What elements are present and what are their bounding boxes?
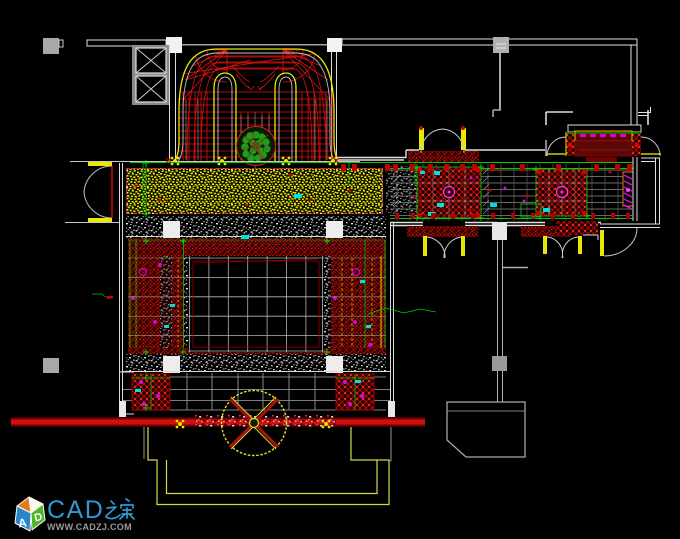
svg-text:CAD: CAD (47, 496, 104, 524)
svg-text:WWW.CADZJ.COM: WWW.CADZJ.COM (47, 522, 132, 532)
